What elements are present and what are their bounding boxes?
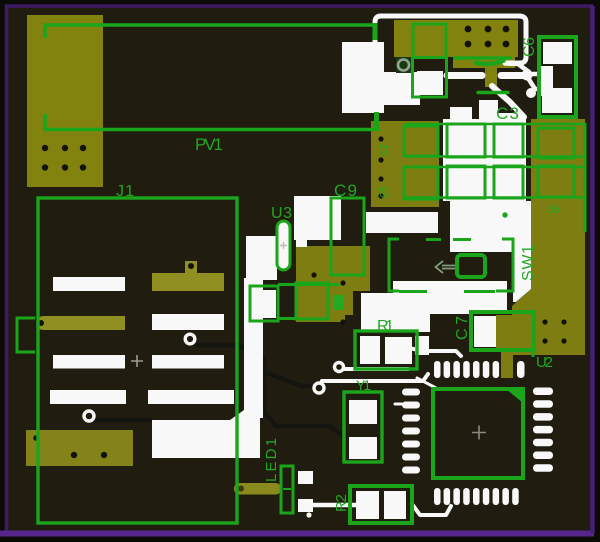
svg-text:LED1: LED1: [263, 438, 280, 482]
svg-text:U5: U5: [546, 204, 560, 216]
svg-text:R2: R2: [333, 494, 350, 512]
svg-text:J1: J1: [116, 183, 134, 200]
svg-text:C9: C9: [334, 181, 357, 200]
svg-text:U2: U2: [536, 354, 553, 371]
svg-text:SW1: SW1: [520, 245, 537, 281]
svg-text:PV1: PV1: [195, 135, 223, 154]
svg-text:C6: C6: [521, 37, 538, 57]
svg-text:C5: C5: [379, 186, 390, 198]
svg-text:C3: C3: [496, 104, 519, 123]
svg-text:Y1: Y1: [356, 377, 371, 393]
svg-text:R1: R1: [377, 318, 394, 335]
svg-text:U3: U3: [271, 205, 292, 222]
svg-text:C2: C2: [379, 144, 390, 156]
